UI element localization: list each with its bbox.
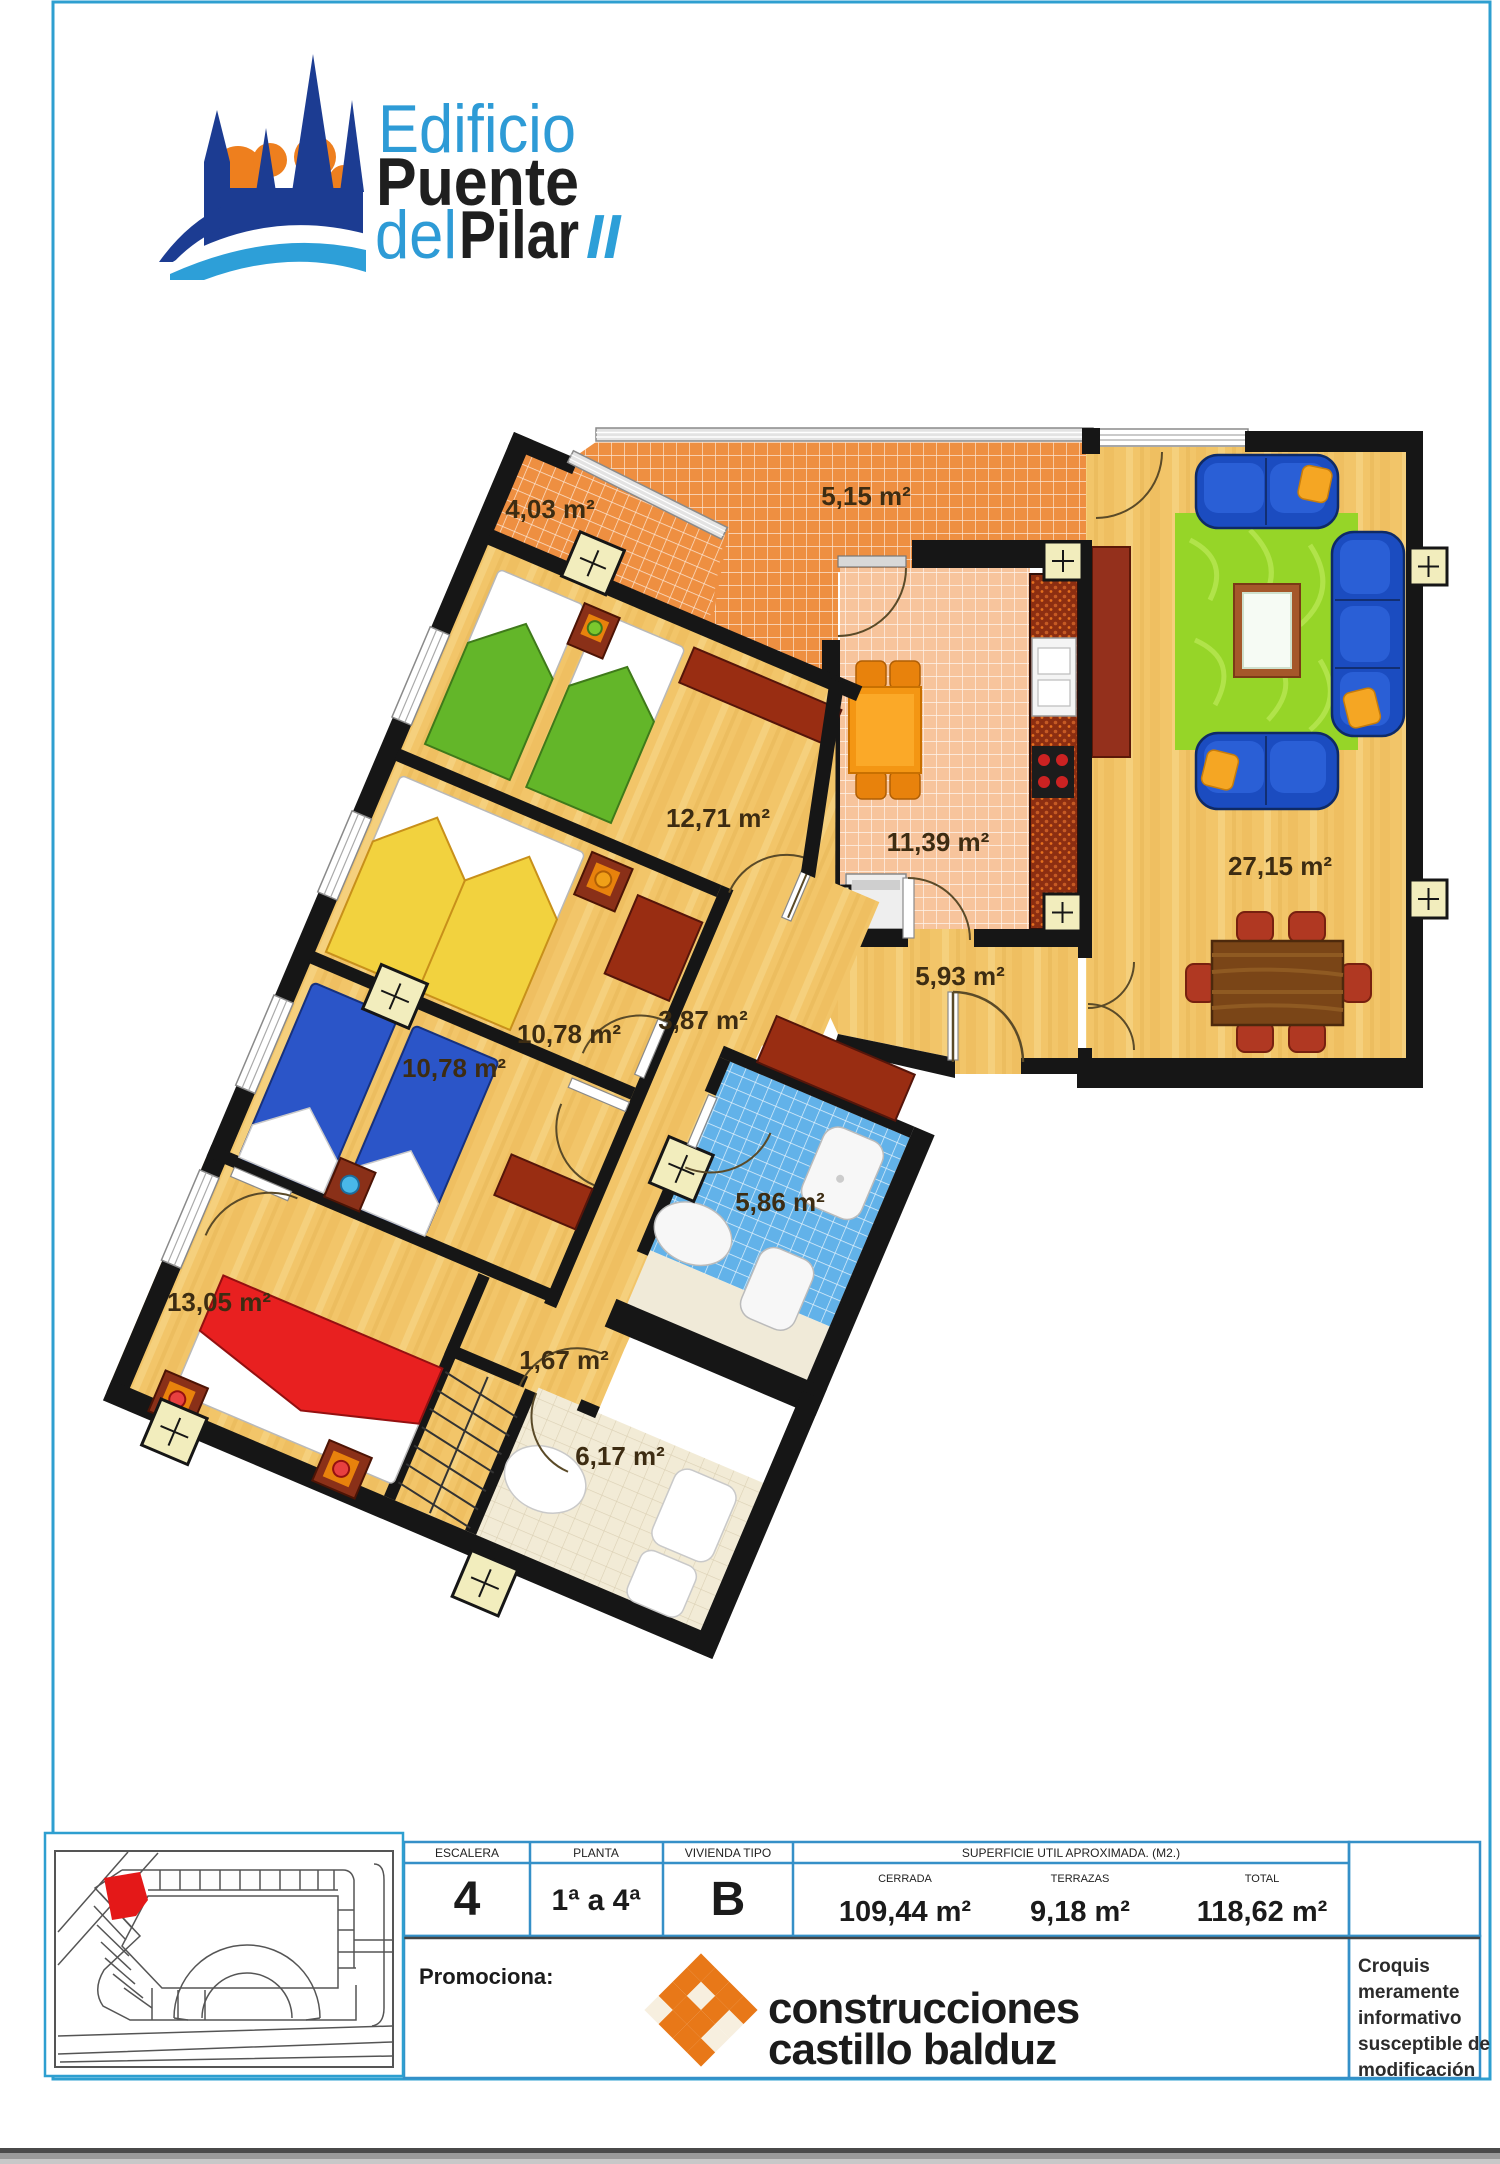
svg-text:3,87 m²: 3,87 m²: [658, 1005, 748, 1035]
svg-text:del: del: [375, 197, 457, 273]
svg-text:13,05 m²: 13,05 m²: [167, 1287, 271, 1317]
svg-text:10,78 m²: 10,78 m²: [402, 1053, 506, 1083]
svg-text:SUPERFICIE UTIL APROXIMADA. (M: SUPERFICIE UTIL APROXIMADA. (M2.): [962, 1846, 1180, 1860]
svg-text:10,78 m²: 10,78 m²: [517, 1019, 621, 1049]
svg-text:TERRAZAS: TERRAZAS: [1051, 1873, 1110, 1885]
svg-text:27,15 m²: 27,15 m²: [1228, 851, 1332, 881]
svg-text:VIVIENDA TIPO: VIVIENDA TIPO: [685, 1846, 771, 1860]
svg-text:5,15 m²: 5,15 m²: [821, 481, 911, 511]
svg-text:109,44 m²: 109,44 m²: [839, 1896, 972, 1928]
svg-text:12,71 m²: 12,71 m²: [666, 803, 770, 833]
svg-text:castillo balduz: castillo balduz: [768, 2025, 1056, 2074]
svg-text:Pilar: Pilar: [459, 197, 579, 273]
svg-text:6,17 m²: 6,17 m²: [575, 1441, 665, 1471]
svg-text:Promociona:: Promociona:: [419, 1964, 553, 1989]
svg-text:118,62 m²: 118,62 m²: [1197, 1896, 1328, 1928]
svg-text:5,86 m²: 5,86 m²: [735, 1187, 825, 1217]
svg-text:9,18 m²: 9,18 m²: [1030, 1896, 1130, 1928]
svg-text:ESCALERA: ESCALERA: [435, 1846, 499, 1860]
svg-text:II: II: [586, 203, 622, 272]
svg-text:1,67 m²: 1,67 m²: [519, 1345, 609, 1375]
svg-text:4,03 m²: 4,03 m²: [505, 494, 595, 524]
svg-text:1ª a 4ª: 1ª a 4ª: [552, 1884, 642, 1917]
svg-text:PLANTA: PLANTA: [573, 1846, 619, 1860]
svg-text:11,39 m²: 11,39 m²: [887, 827, 990, 857]
svg-text:TOTAL: TOTAL: [1245, 1873, 1279, 1885]
svg-text:5,93 m²: 5,93 m²: [915, 961, 1005, 991]
svg-text:B: B: [711, 1873, 746, 1926]
svg-text:4: 4: [454, 1873, 481, 1926]
svg-text:CERRADA: CERRADA: [878, 1873, 932, 1885]
svg-text:Croquis meramente informativo: Croquis meramente informativo susceptibl…: [1358, 1956, 1495, 2081]
